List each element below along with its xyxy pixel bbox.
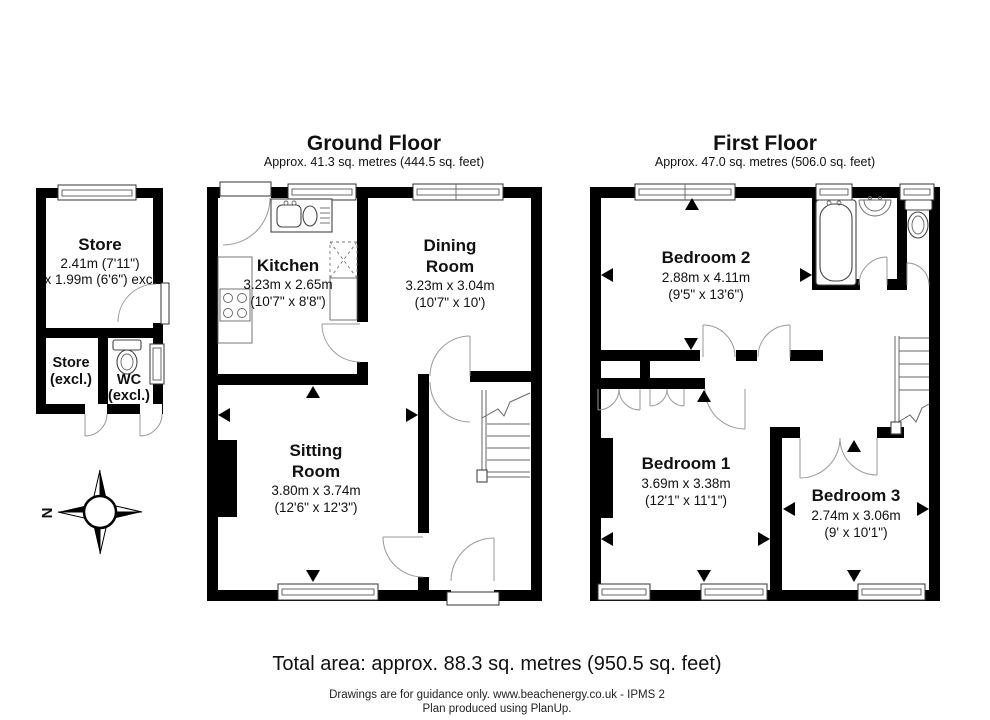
bedroom1-window-right [701, 584, 767, 600]
room-dims-store-2: x 1.99m (6'6") excl [45, 272, 156, 287]
landing-cupboard-door [758, 325, 790, 357]
bathroom-window [816, 184, 852, 200]
floorplan-drawing: Ground Floor Approx. 41.3 sq. metres (44… [0, 0, 990, 720]
landing-door [840, 438, 877, 475]
bedroom3-door [800, 438, 840, 478]
room-dims-sitting-imperial: (12'6" x 12'3") [274, 500, 357, 515]
room-label-bedroom3: Bedroom 3 [812, 486, 901, 505]
kitchen-window [288, 184, 356, 200]
store-window [58, 185, 136, 200]
dining-window [413, 184, 503, 200]
bathroom-door [859, 257, 887, 285]
stairs-first [891, 336, 929, 434]
room-label-store-excl: Store [52, 355, 89, 371]
room-dims-dining-metric: 3.23m x 3.04m [405, 278, 494, 293]
produced-text: Plan produced using PlanUp. [423, 703, 572, 715]
bedroom1-door [705, 389, 745, 429]
kitchen-back-door [220, 182, 271, 245]
store-door [118, 283, 169, 324]
dining-door [430, 336, 470, 422]
room-label-bedroom1: Bedroom 1 [642, 454, 731, 473]
first-floor-plan: Bedroom 2 2.88m x 4.11m (9'5" x 13'6") B… [590, 184, 940, 601]
wc-first-door [907, 263, 929, 285]
room-dims-bedroom3-imperial: (9' x 10'1") [824, 525, 887, 540]
wc-door [140, 404, 162, 436]
bedroom1-cupboard-doors [598, 389, 684, 410]
bedroom3-window [858, 584, 925, 600]
ground-floor-area: Approx. 41.3 sq. metres (444.5 sq. feet) [264, 155, 484, 169]
bathtub-icon [816, 200, 856, 285]
wc-window [150, 344, 164, 384]
kitchen-door [322, 324, 360, 362]
room-label-wc: WC [117, 372, 142, 388]
room-dims-store-1: 2.41m (7'11") [60, 256, 139, 271]
room-dims-sitting-metric: 3.80m x 3.74m [271, 483, 360, 498]
bedroom2-window [635, 184, 735, 200]
disclaimer-text: Drawings are for guidance only. www.beac… [329, 689, 665, 701]
room-dims-dining-imperial: (10'7" x 10') [415, 295, 486, 310]
wc-first-window [900, 184, 934, 200]
sink-icon [271, 199, 332, 232]
bedroom1-window-left [598, 584, 650, 600]
room-label-bedroom2: Bedroom 2 [662, 248, 751, 267]
room-label-sitting-1: Sitting [290, 441, 343, 460]
chimney-breast-first [590, 438, 613, 518]
ground-floor-plan: Kitchen 3.23m x 2.65m (10'7" x 8'8") Din… [207, 182, 542, 605]
room-label-wc-2: (excl.) [108, 388, 150, 404]
room-label-sitting-2: Room [292, 462, 340, 481]
sitting-window [278, 584, 378, 600]
chimney-breast [207, 440, 237, 517]
room-dims-bedroom1-imperial: (12'1" x 11'1") [645, 493, 727, 508]
toilet-first-icon [905, 200, 932, 238]
total-area-text: Total area: approx. 88.3 sq. metres (950… [272, 653, 721, 675]
room-dims-kitchen-metric: 3.23m x 2.65m [243, 277, 332, 292]
sitting-room-door [383, 537, 423, 577]
room-dims-bedroom2-metric: 2.88m x 4.11m [662, 270, 750, 285]
hob-icon [218, 257, 252, 343]
kitchen-unit-icon [330, 242, 357, 320]
room-label-kitchen: Kitchen [257, 256, 319, 275]
front-door [447, 538, 499, 605]
ground-floor-title: Ground Floor [307, 132, 441, 155]
store-outbuilding: Store 2.41m (7'11") x 1.99m (6'6") excl … [36, 185, 169, 436]
room-dims-bedroom3-metric: 2.74m x 3.06m [811, 508, 900, 523]
room-dims-bedroom1-metric: 3.69m x 3.38m [641, 476, 730, 491]
bedroom2-door [703, 325, 735, 357]
room-label-store-excl-2: (excl.) [50, 372, 92, 388]
room-label-store: Store [78, 235, 121, 254]
toilet-icon [113, 340, 141, 374]
first-floor-title: First Floor [713, 132, 817, 155]
compass-north-label: N [39, 508, 56, 519]
store-excl-door [85, 404, 107, 436]
room-dims-kitchen-imperial: (10'7" x 8'8") [250, 294, 326, 309]
first-floor-area: Approx. 47.0 sq. metres (506.0 sq. feet) [655, 155, 875, 169]
compass-icon: N [39, 470, 142, 554]
room-label-dining-1: Dining [424, 236, 477, 255]
room-dims-bedroom2-imperial: (9'5" x 13'6") [668, 287, 744, 302]
stairs-ground [477, 390, 530, 482]
room-label-dining-2: Room [426, 257, 474, 276]
floorplan-page: Ground Floor Approx. 41.3 sq. metres (44… [0, 0, 990, 720]
basin-icon [859, 197, 891, 217]
